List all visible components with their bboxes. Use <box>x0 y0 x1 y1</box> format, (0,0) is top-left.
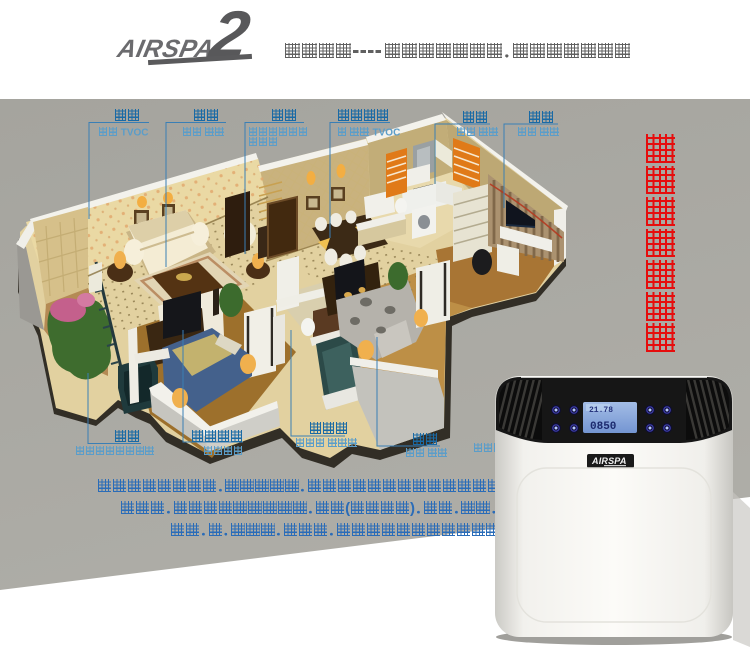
svg-text:21.78: 21.78 <box>589 406 613 415</box>
svg-text:AIRSPA: AIRSPA <box>591 456 627 466</box>
svg-text:0850: 0850 <box>590 421 616 433</box>
